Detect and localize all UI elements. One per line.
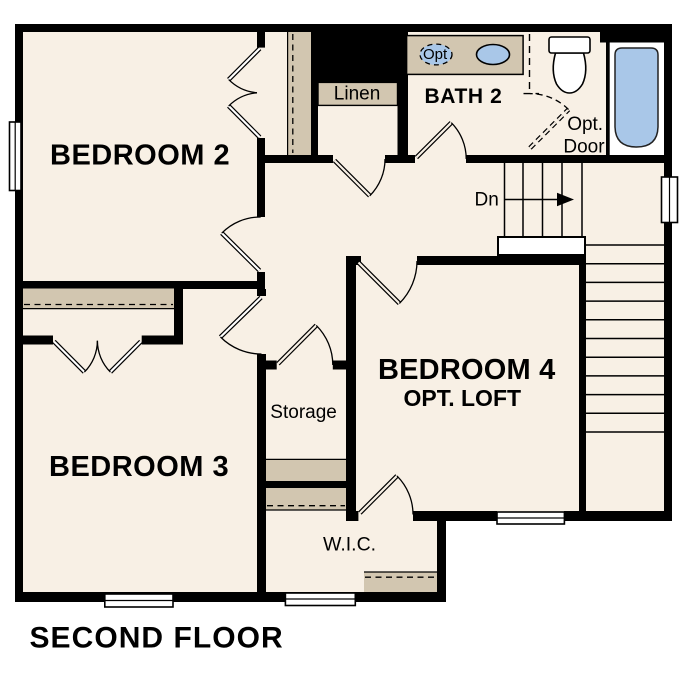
svg-text:OPT. LOFT: OPT. LOFT [404,385,522,411]
svg-text:Linen: Linen [334,84,381,105]
svg-text:BEDROOM 4: BEDROOM 4 [378,354,555,386]
svg-text:BEDROOM 2: BEDROOM 2 [50,139,230,171]
svg-text:BEDROOM 3: BEDROOM 3 [49,451,229,483]
svg-text:Opt.: Opt. [567,114,603,135]
svg-text:Dn: Dn [475,189,499,210]
svg-text:W.I.C.: W.I.C. [323,534,376,556]
svg-text:BATH 2: BATH 2 [425,85,503,108]
svg-text:Storage: Storage [270,402,337,423]
svg-text:Opt: Opt [423,46,448,63]
svg-text:SECOND FLOOR: SECOND FLOOR [30,622,284,655]
svg-text:Door: Door [563,137,605,158]
